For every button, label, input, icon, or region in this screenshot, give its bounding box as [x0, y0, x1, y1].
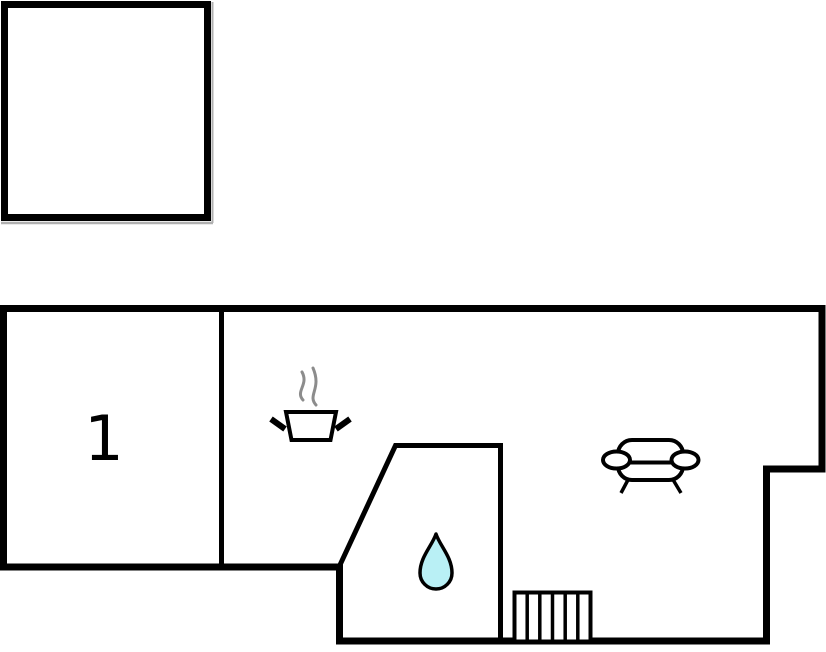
- pot-body: [286, 412, 336, 440]
- sofa-armrest-left: [603, 452, 630, 469]
- floor-plan: 1: [0, 0, 826, 652]
- sofa-armrest-right: [672, 452, 699, 469]
- annex-outline: [5, 5, 208, 218]
- annex-outline-group: [1, 2, 213, 223]
- stairs-icon: [515, 593, 591, 642]
- main-floor-outline: [4, 309, 823, 642]
- room-1-label: 1: [84, 402, 123, 475]
- floor-plan-page: 1: [0, 0, 826, 652]
